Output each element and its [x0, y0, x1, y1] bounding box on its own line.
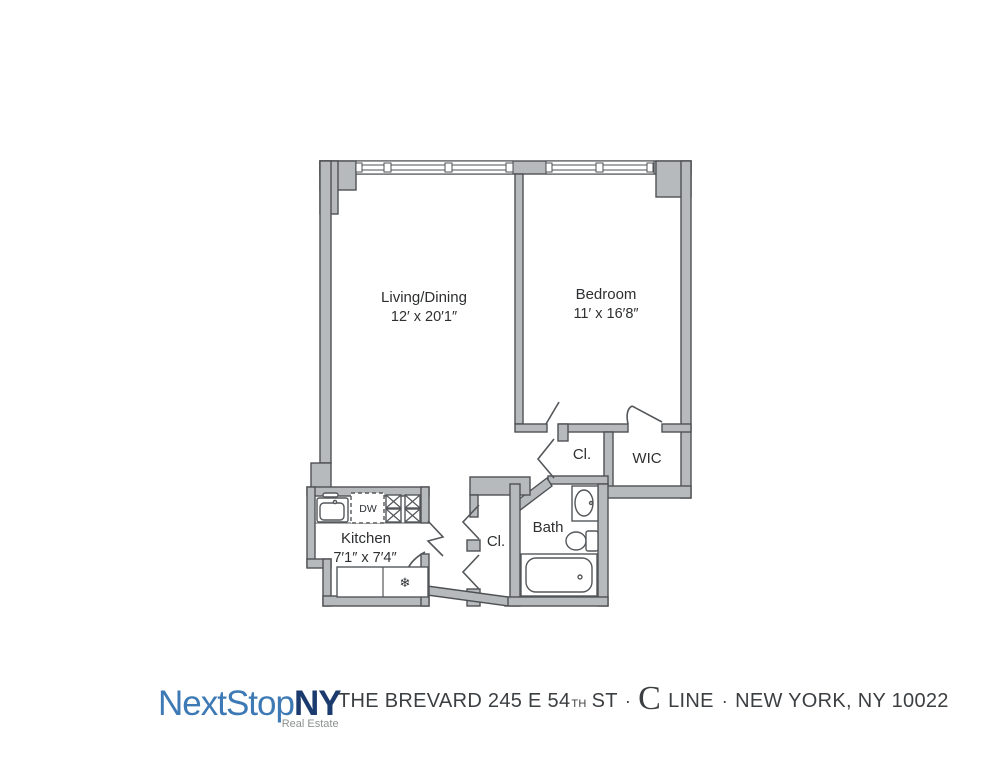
- bedroom-label: Bedroom: [576, 286, 637, 303]
- bedroom-closet-bifold: [538, 439, 554, 478]
- address-ordinal: TH: [571, 698, 586, 710]
- dishwasher-label: DW: [359, 503, 377, 515]
- wic-label: WIC: [632, 450, 661, 467]
- vanity-sink: [572, 486, 598, 521]
- hall-closet-bifold-lower: [463, 555, 479, 589]
- bedroom-door: [546, 402, 559, 424]
- refrigerator: ❄: [337, 567, 428, 597]
- bathtub: [521, 554, 597, 596]
- address-building: THE BREVARD 245 E 54: [338, 690, 570, 713]
- snowflake-icon: ❄: [400, 575, 411, 590]
- bedroom-closet-label: Cl.: [573, 446, 591, 463]
- bedroom-dims: 11′ x 16′8″: [573, 306, 638, 322]
- dishwasher: DW: [351, 493, 384, 523]
- kitchen-dims: 7′1″ x 7′4″: [333, 550, 396, 566]
- living-window: [356, 161, 513, 174]
- logo-nextstop-text: NextStop: [158, 684, 294, 723]
- kitchen-sink: [317, 493, 348, 522]
- bedroom-window: [546, 161, 654, 174]
- hall-closet-label: Cl.: [487, 533, 505, 550]
- bath-fixtures: [521, 486, 598, 596]
- floor-plan-page: DW ❄: [0, 0, 1000, 770]
- address-city: NEW YORK, NY 10022: [735, 690, 949, 713]
- floor-plan: DW ❄: [295, 150, 705, 615]
- subway-line-word: LINE: [668, 690, 714, 713]
- toilet: [566, 531, 598, 551]
- living-dining-label: Living/Dining: [381, 289, 467, 306]
- living-dining-dims: 12′ x 20′1″: [391, 309, 457, 325]
- wic-door: [627, 406, 662, 424]
- windows: [356, 161, 654, 174]
- address-separator-1: ·: [625, 691, 631, 712]
- listing-address: THE BREVARD 245 E 54TH ST · C LINE · NEW…: [338, 690, 949, 713]
- nextstopny-logo: NextStopNY Real Estate: [158, 686, 341, 730]
- bath-label: Bath: [533, 519, 564, 536]
- address-separator-2: ·: [722, 691, 728, 712]
- kitchen-label: Kitchen: [341, 530, 391, 547]
- range-burners: [386, 495, 420, 522]
- address-street-suffix: ST: [592, 690, 618, 713]
